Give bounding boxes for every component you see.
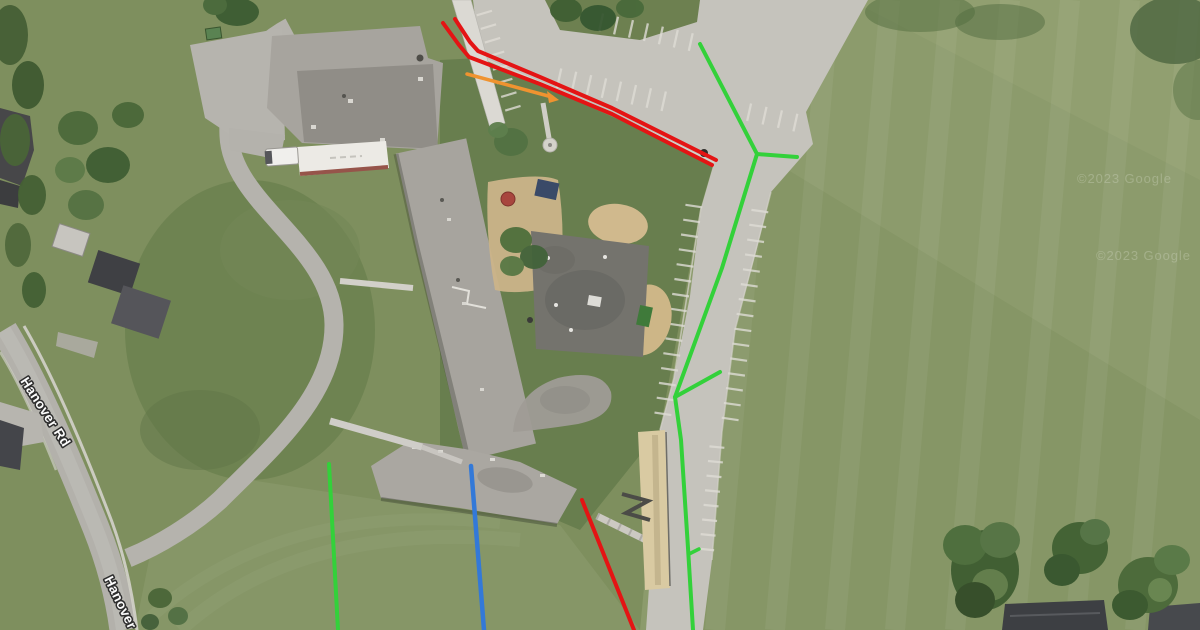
map-canvas[interactable]: Hanover RdHanover©2023 Google©2023 Googl…: [0, 0, 1200, 630]
map-watermark: ©2023 Google: [1077, 171, 1172, 186]
map-watermark: ©2023 Google: [1096, 248, 1191, 263]
dumpster: [205, 27, 221, 40]
play-structure-red: [501, 192, 515, 206]
satellite-map[interactable]: Hanover RdHanover©2023 Google©2023 Googl…: [0, 0, 1200, 630]
